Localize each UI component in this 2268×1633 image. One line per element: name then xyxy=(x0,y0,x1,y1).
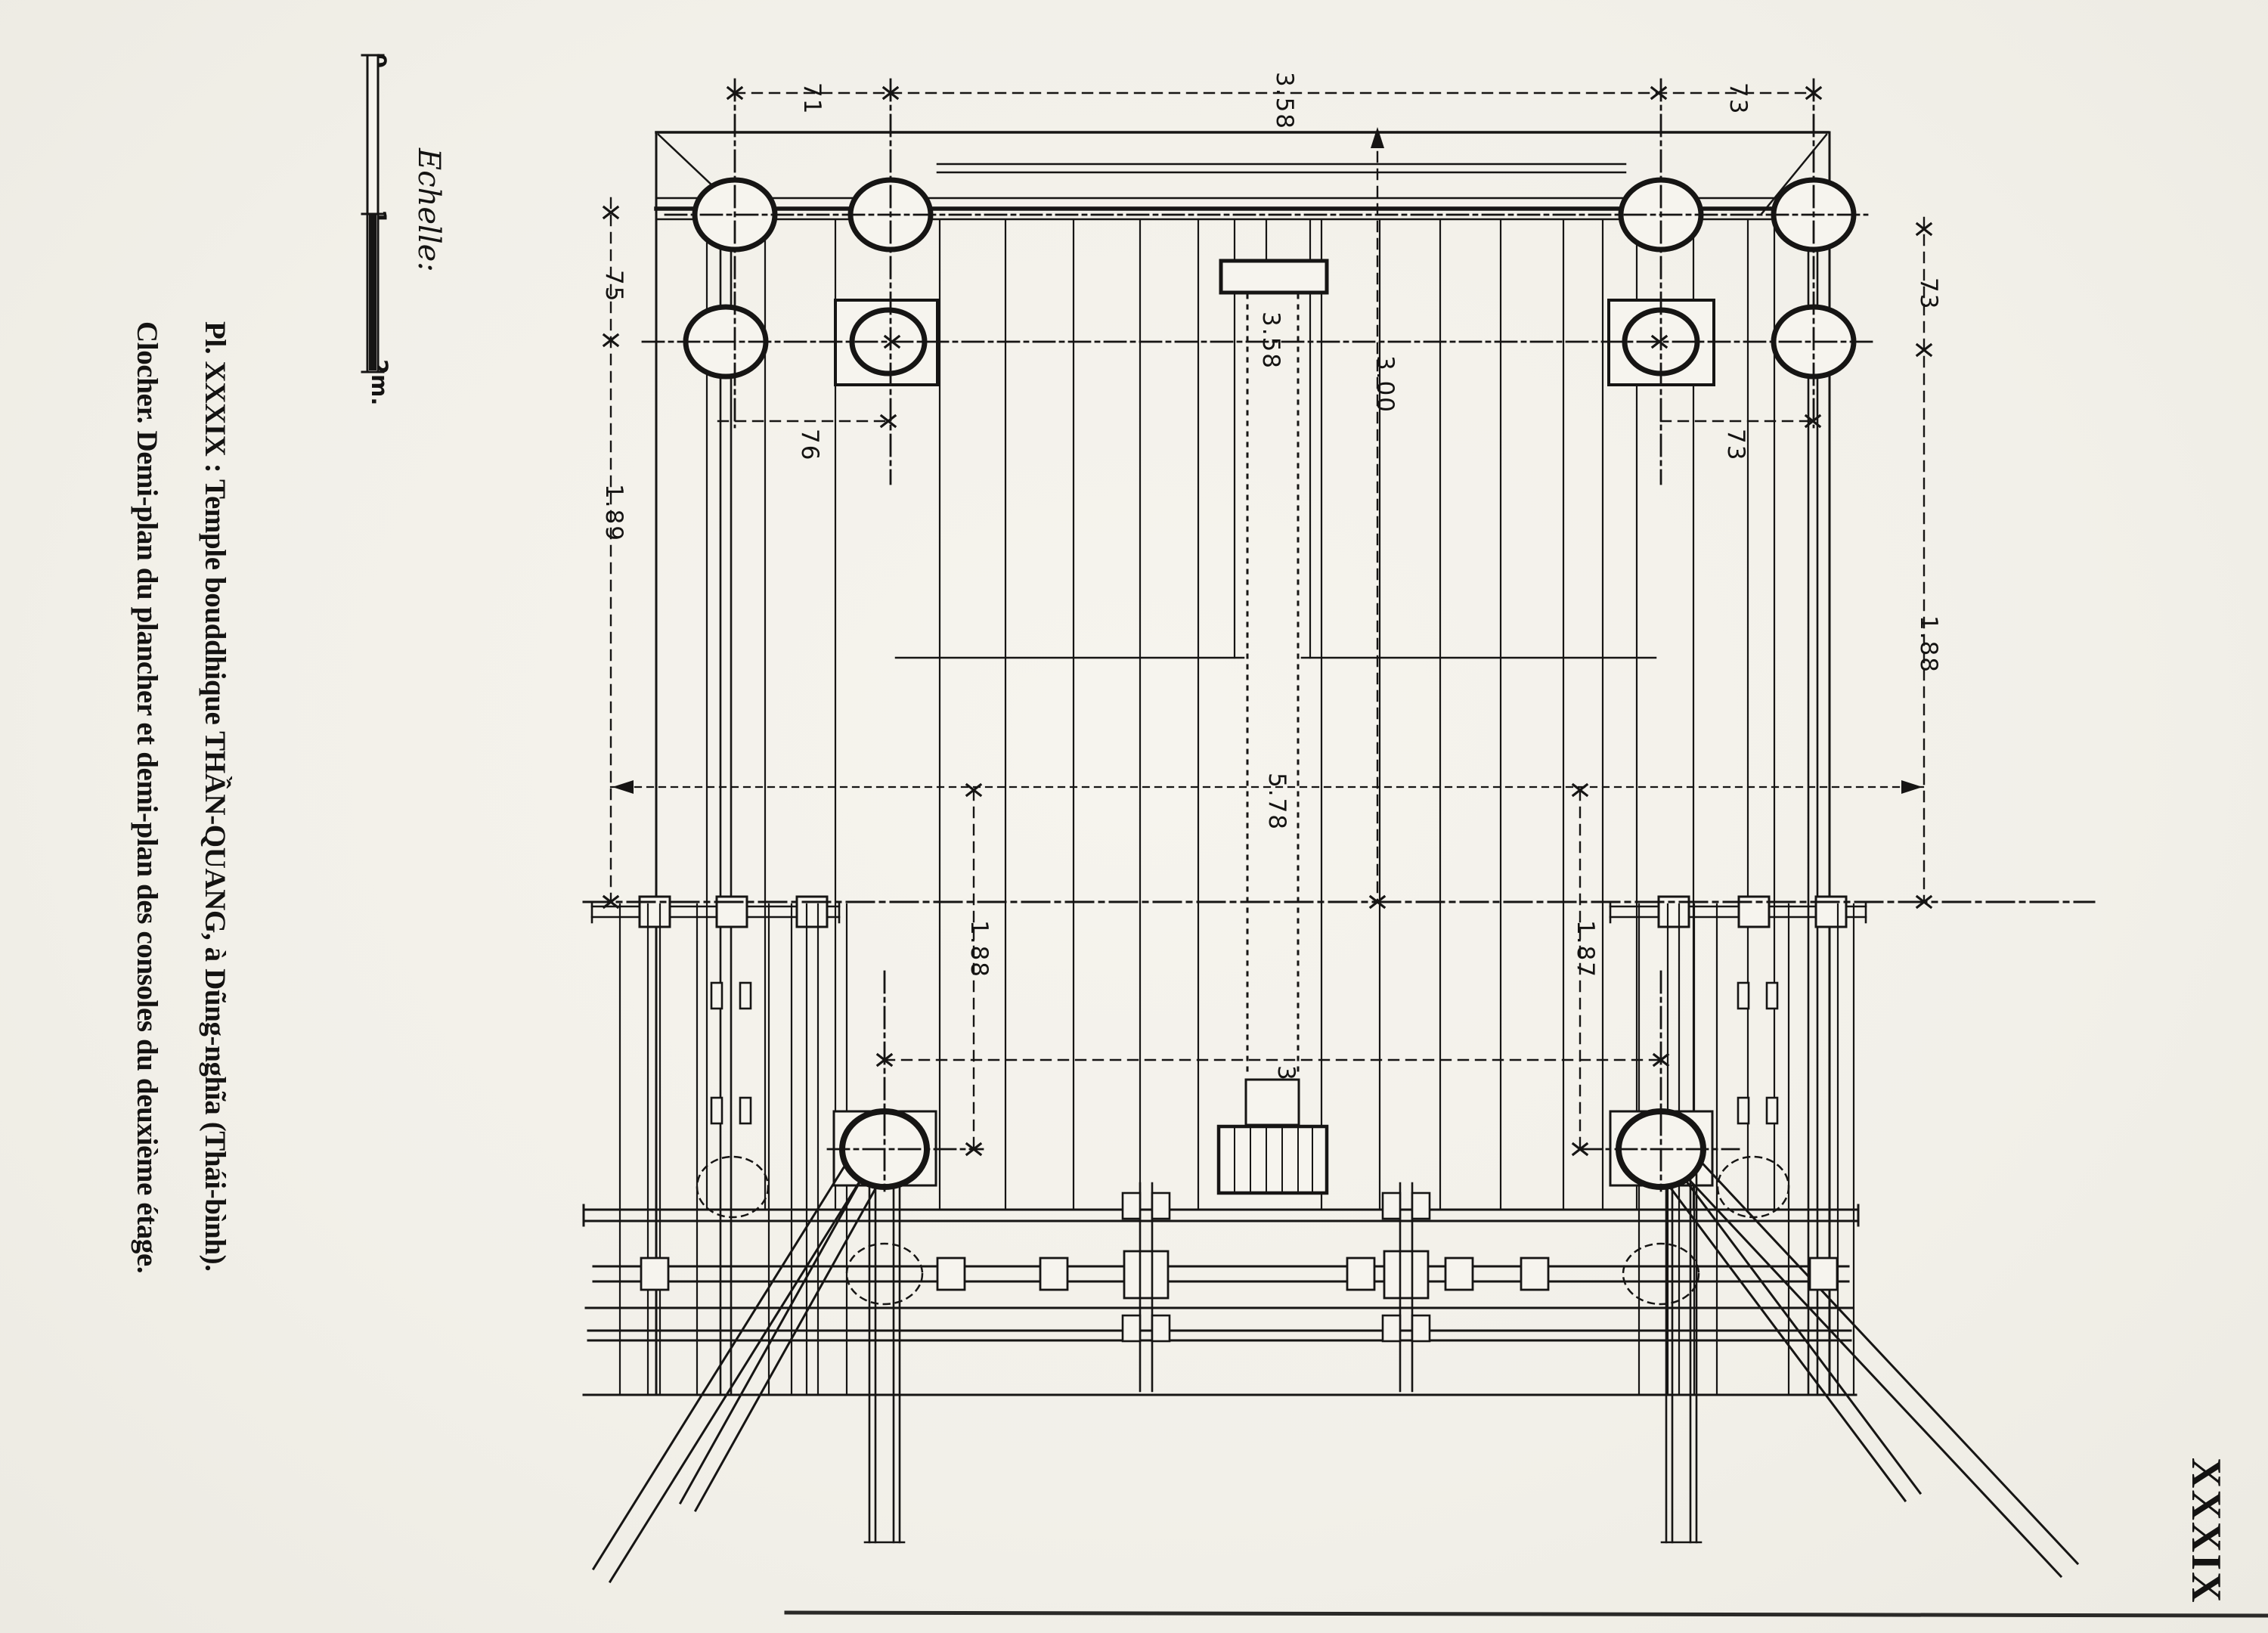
corner-posts xyxy=(720,243,1817,1395)
console-columns xyxy=(593,1111,2077,1582)
lower-half-plan xyxy=(584,897,2077,1582)
scan-edge-line xyxy=(786,1613,2268,1616)
dimension-ticks xyxy=(604,88,1931,1154)
beam-keys xyxy=(641,1251,1837,1298)
central-block xyxy=(1219,1080,1327,1193)
dimension-arrows xyxy=(612,127,1923,794)
scale-bar xyxy=(362,55,383,372)
central-beam xyxy=(1221,221,1327,1078)
upper-half-plan xyxy=(656,132,1854,1395)
dimension-lines xyxy=(611,93,1924,1149)
plan-drawing xyxy=(0,0,2268,1633)
axis-lines xyxy=(643,79,1875,1191)
